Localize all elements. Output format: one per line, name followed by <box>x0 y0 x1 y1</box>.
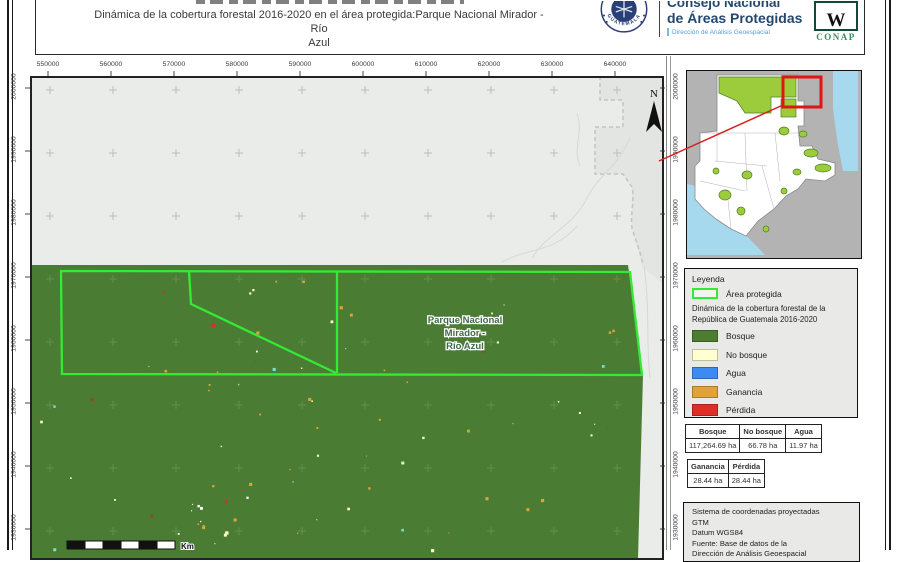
map-title-line2: Azul <box>308 37 329 49</box>
change-dot <box>165 370 168 373</box>
scale-bar-segment <box>121 541 139 549</box>
legend-class-label: Pérdida <box>726 405 755 415</box>
main-map: Parque Nacional Mirador - Río Azul N Km <box>30 76 664 560</box>
org-name-block: Consejo Nacional de Áreas Protegidas Dir… <box>667 1 807 36</box>
grid-cross <box>361 212 369 220</box>
change-dot <box>350 314 353 317</box>
change-dot <box>504 305 505 306</box>
scale-bar-segment <box>85 541 103 549</box>
change-dot <box>366 455 367 456</box>
y-axis-label-left: 2000000 <box>11 65 18 109</box>
change-dot <box>497 341 499 343</box>
y-axis-label-right: 1960000 <box>673 317 680 361</box>
grid-cross <box>424 86 432 94</box>
change-dot <box>40 421 43 424</box>
grid-cross <box>613 212 621 220</box>
table-header-row: BosqueNo bosqueAgua <box>686 425 822 439</box>
grid-cross <box>361 149 369 157</box>
change-dot <box>178 533 180 535</box>
table-header-cell: Ganancia <box>688 460 729 474</box>
table-value-cell: 117,264.69 ha <box>686 439 740 453</box>
change-dot <box>316 427 318 429</box>
grid-cross <box>109 212 117 220</box>
change-dot <box>200 507 203 510</box>
legend-class-label: Agua <box>726 368 746 378</box>
map-title-line1: Dinámica de la cobertura forestal 2016-2… <box>94 9 543 35</box>
change-dot <box>345 348 346 349</box>
change-dot <box>401 529 404 532</box>
gain-loss-table: GananciaPérdida28.44 ha28.44 ha <box>687 459 765 488</box>
table-header-cell: Pérdida <box>728 460 764 474</box>
change-dot <box>225 500 228 503</box>
source-info-lines: Sistema de coordenadas proyectadasGTMDat… <box>692 507 851 560</box>
change-dot <box>148 366 149 367</box>
grid-cross <box>109 149 117 157</box>
change-dot <box>249 292 251 294</box>
scale-bar-segment <box>139 541 157 549</box>
grid-cross <box>109 86 117 94</box>
grid-cross <box>424 212 432 220</box>
source-line: Dirección de Análisis Geoespacial <box>692 549 851 560</box>
change-dot <box>316 519 317 520</box>
change-dot <box>221 446 222 447</box>
legend-class-list: BosqueNo bosqueAguaGananciaPérdida <box>692 330 850 416</box>
legend-class-swatch-no-bosque <box>692 349 718 361</box>
change-dot <box>302 281 305 284</box>
title-banner: Dinámica de la cobertura forestal 2016-2… <box>35 0 865 55</box>
grid-cross <box>550 149 558 157</box>
change-dot <box>249 483 252 486</box>
change-dot <box>203 525 205 527</box>
y-axis-label-left: 1950000 <box>11 380 18 424</box>
change-dot <box>347 508 350 511</box>
table-value-row: 117,264.69 ha66.78 ha11.97 ha <box>686 439 822 453</box>
change-dot <box>317 455 319 457</box>
y-axis-label-left: 1940000 <box>11 443 18 487</box>
legend-class-item: No bosque <box>692 349 850 361</box>
park-label-line1: Parque Nacional <box>428 315 502 326</box>
legend-class-label: Bosque <box>726 331 755 341</box>
change-dot <box>191 510 192 511</box>
change-dot <box>225 531 228 534</box>
y-axis-label-right: 1940000 <box>673 443 680 487</box>
legend-protected-area-item: Área protegida <box>692 288 850 299</box>
conap-label: CONAP <box>813 32 859 42</box>
change-dot <box>422 437 424 439</box>
change-dot <box>273 368 276 371</box>
change-dot <box>91 398 94 401</box>
y-axis-label-left: 1970000 <box>11 254 18 298</box>
table-header-cell: Bosque <box>686 425 740 439</box>
grid-cross <box>487 149 495 157</box>
table-header-row: GananciaPérdida <box>688 460 765 474</box>
grid-cross <box>298 212 306 220</box>
table-value-row: 28.44 ha28.44 ha <box>688 474 765 488</box>
change-dot <box>379 419 381 421</box>
source-info-panel: Sistema de coordenadas proyectadasGTMDat… <box>683 502 860 562</box>
protected-area-label: Área protegida <box>726 289 782 299</box>
y-axis-label-left: 1980000 <box>11 191 18 235</box>
legend-class-swatch-agua <box>692 367 718 379</box>
park-label-line3: Río Azul <box>446 341 484 352</box>
legend-class-label: Ganancia <box>726 387 762 397</box>
grid-cross <box>550 212 558 220</box>
header-divider <box>659 1 660 37</box>
y-axis-label-right: 1930000 <box>673 506 680 550</box>
change-dot <box>609 331 611 333</box>
change-dot <box>217 371 219 373</box>
source-line: Fuente: Base de datos de la <box>692 539 851 550</box>
page-border-right-outer <box>889 0 891 550</box>
grid-cross <box>172 86 180 94</box>
jaguar-icon: W <box>827 12 846 29</box>
change-dot <box>384 370 386 372</box>
change-dot <box>163 291 165 293</box>
change-dot <box>256 351 258 353</box>
org-department-row: Dirección de Análisis Geoespacial <box>667 28 807 36</box>
change-dot <box>150 515 153 518</box>
y-axis-label-right: 2000000 <box>673 65 680 109</box>
change-dot <box>255 362 256 363</box>
change-dot <box>212 485 214 487</box>
map-title: Dinámica de la cobertura forestal 2016-2… <box>89 8 549 50</box>
change-dot <box>246 497 248 499</box>
department-accent-bar <box>667 28 669 36</box>
grid-cross <box>235 86 243 94</box>
change-dot <box>214 543 215 544</box>
change-dot <box>200 521 201 522</box>
change-dot <box>579 412 581 414</box>
change-dot <box>114 499 116 501</box>
grid-cross <box>46 86 54 94</box>
y-axis-label-right: 1950000 <box>673 380 680 424</box>
table-value-cell: 66.78 ha <box>740 439 786 453</box>
legend-class-item: Agua <box>692 367 850 379</box>
change-dot <box>591 434 593 436</box>
legend-title: Leyenda <box>692 274 850 284</box>
map-canvas: Parque Nacional Mirador - Río Azul N Km <box>32 78 662 558</box>
x-axis-label: 570000 <box>150 61 198 68</box>
change-dot <box>407 381 409 383</box>
org-department: Dirección de Análisis Geoespacial <box>672 29 770 36</box>
grid-cross <box>298 149 306 157</box>
change-dot <box>368 487 370 489</box>
x-axis-label: 610000 <box>402 61 450 68</box>
x-axis-label: 600000 <box>339 61 387 68</box>
area-stats-table: BosqueNo bosqueAgua117,264.69 ha66.78 ha… <box>685 424 822 453</box>
change-dot <box>311 400 313 402</box>
x-axis-label: 550000 <box>24 61 72 68</box>
y-axis-label-right: 1970000 <box>673 254 680 298</box>
change-dot <box>308 398 311 401</box>
neighbor-territory-area <box>595 78 662 283</box>
change-dot <box>234 518 237 521</box>
change-dot <box>297 533 298 534</box>
y-axis-label-left: 1990000 <box>11 128 18 172</box>
org-name-line1-clipped: Consejo Nacional <box>667 1 807 10</box>
inset-locator-map <box>686 70 862 259</box>
org-name-line1: Consejo Nacional <box>667 1 807 10</box>
x-axis-label: 580000 <box>213 61 261 68</box>
grid-cross <box>361 86 369 94</box>
change-dot <box>209 384 211 386</box>
conap-logo-box: W <box>814 1 858 31</box>
y-axis-label-left: 1930000 <box>11 506 18 550</box>
grid-cross <box>424 149 432 157</box>
legend-class-swatch-bosque <box>692 330 718 342</box>
table-header-cell: No bosque <box>740 425 786 439</box>
change-dot <box>301 368 302 369</box>
x-axis-label: 640000 <box>591 61 639 68</box>
legend-class-swatch-ganancia <box>692 386 718 398</box>
legend-class-item: Bosque <box>692 330 850 342</box>
grid-cross <box>298 86 306 94</box>
source-line: Sistema de coordenadas proyectadas <box>692 507 851 518</box>
change-dot <box>208 390 210 392</box>
source-line: Datum WGS84 <box>692 528 851 539</box>
page-border-right-inner <box>885 0 886 550</box>
change-dot <box>53 405 55 407</box>
change-dot <box>259 414 261 416</box>
change-dot <box>526 508 529 511</box>
y-axis-label-right: 1980000 <box>673 191 680 235</box>
grid-cross <box>172 212 180 220</box>
map-document-page: Dinámica de la cobertura forestal 2016-2… <box>0 0 900 550</box>
caribbean-sea <box>833 71 858 171</box>
change-dot <box>252 289 254 291</box>
change-dot <box>238 384 239 385</box>
protected-area-swatch <box>692 288 718 299</box>
table-header-cell: Agua <box>786 425 822 439</box>
change-dot <box>192 504 193 505</box>
grid-cross <box>46 212 54 220</box>
legend-subtitle: Dinámica de la cobertura forestal de la … <box>692 304 850 325</box>
legend-class-item: Pérdida <box>692 404 850 416</box>
table-value-cell: 28.44 ha <box>688 474 729 488</box>
legend-class-item: Ganancia <box>692 386 850 398</box>
change-dot <box>558 401 560 403</box>
grid-cross <box>235 149 243 157</box>
grid-cross <box>487 86 495 94</box>
change-dot <box>242 490 243 491</box>
change-dot <box>612 330 615 333</box>
change-dot <box>541 499 544 502</box>
grid-cross <box>550 86 558 94</box>
x-axis-label: 620000 <box>465 61 513 68</box>
grid-cross <box>235 212 243 220</box>
north-label: N <box>650 88 658 100</box>
change-dot <box>70 477 72 479</box>
source-line: GTM <box>692 518 851 529</box>
scale-bar-segment <box>103 541 121 549</box>
scale-bar-segment <box>67 541 85 549</box>
change-dot <box>331 320 334 323</box>
change-dot <box>212 324 215 327</box>
x-axis-label: 630000 <box>528 61 576 68</box>
legend-class-label: No bosque <box>726 350 767 360</box>
org-name-line2: de Áreas Protegidas <box>667 10 807 26</box>
table-value-cell: 28.44 ha <box>728 474 764 488</box>
guatemala-seal-icon: GUATEMALA <box>597 1 651 41</box>
x-axis-label: 560000 <box>87 61 135 68</box>
y-axis-label-right: 1990000 <box>673 128 680 172</box>
change-dot <box>594 424 595 425</box>
grid-cross <box>46 149 54 157</box>
grid-cross <box>487 212 495 220</box>
conap-logo: W CONAP <box>813 1 859 42</box>
change-dot <box>402 461 403 462</box>
change-dot <box>289 469 290 470</box>
legend-class-swatch-p-rdida <box>692 404 718 416</box>
grid-cross <box>172 149 180 157</box>
change-dot <box>607 427 608 428</box>
change-dot <box>275 281 277 283</box>
change-dot <box>467 430 470 433</box>
change-dot <box>485 497 488 500</box>
clipped-title-line <box>196 0 464 4</box>
legend-panel: Leyenda Área protegida Dinámica de la co… <box>684 268 858 418</box>
change-dot <box>448 532 449 533</box>
scale-bar-segment <box>157 541 175 549</box>
guatemala-inset-canvas <box>687 71 858 255</box>
table-value-cell: 11.97 ha <box>786 439 822 453</box>
x-axis-label: 590000 <box>276 61 324 68</box>
change-dot <box>512 423 513 424</box>
change-dot <box>340 306 343 309</box>
page-border-left-outer <box>7 0 9 550</box>
change-dot <box>602 365 605 368</box>
change-dot <box>292 481 293 482</box>
change-dot <box>197 505 199 507</box>
park-label-line2: Mirador - <box>445 328 486 339</box>
change-dot <box>197 523 199 525</box>
y-axis-label-left: 1960000 <box>11 317 18 361</box>
